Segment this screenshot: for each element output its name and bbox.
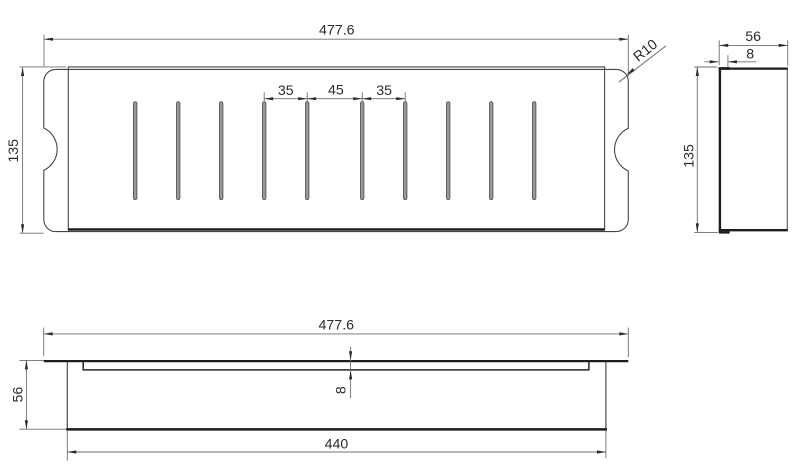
- svg-text:135: 135: [682, 144, 698, 168]
- svg-text:56: 56: [745, 29, 761, 45]
- svg-text:477.6: 477.6: [319, 318, 355, 334]
- svg-text:8: 8: [746, 46, 754, 62]
- svg-text:35: 35: [376, 83, 392, 99]
- svg-text:135: 135: [6, 139, 22, 163]
- svg-text:45: 45: [328, 83, 344, 99]
- svg-text:35: 35: [278, 83, 294, 99]
- svg-text:8: 8: [334, 386, 350, 394]
- svg-text:477.6: 477.6: [319, 23, 355, 39]
- svg-text:56: 56: [11, 387, 27, 403]
- svg-text:440: 440: [325, 436, 349, 452]
